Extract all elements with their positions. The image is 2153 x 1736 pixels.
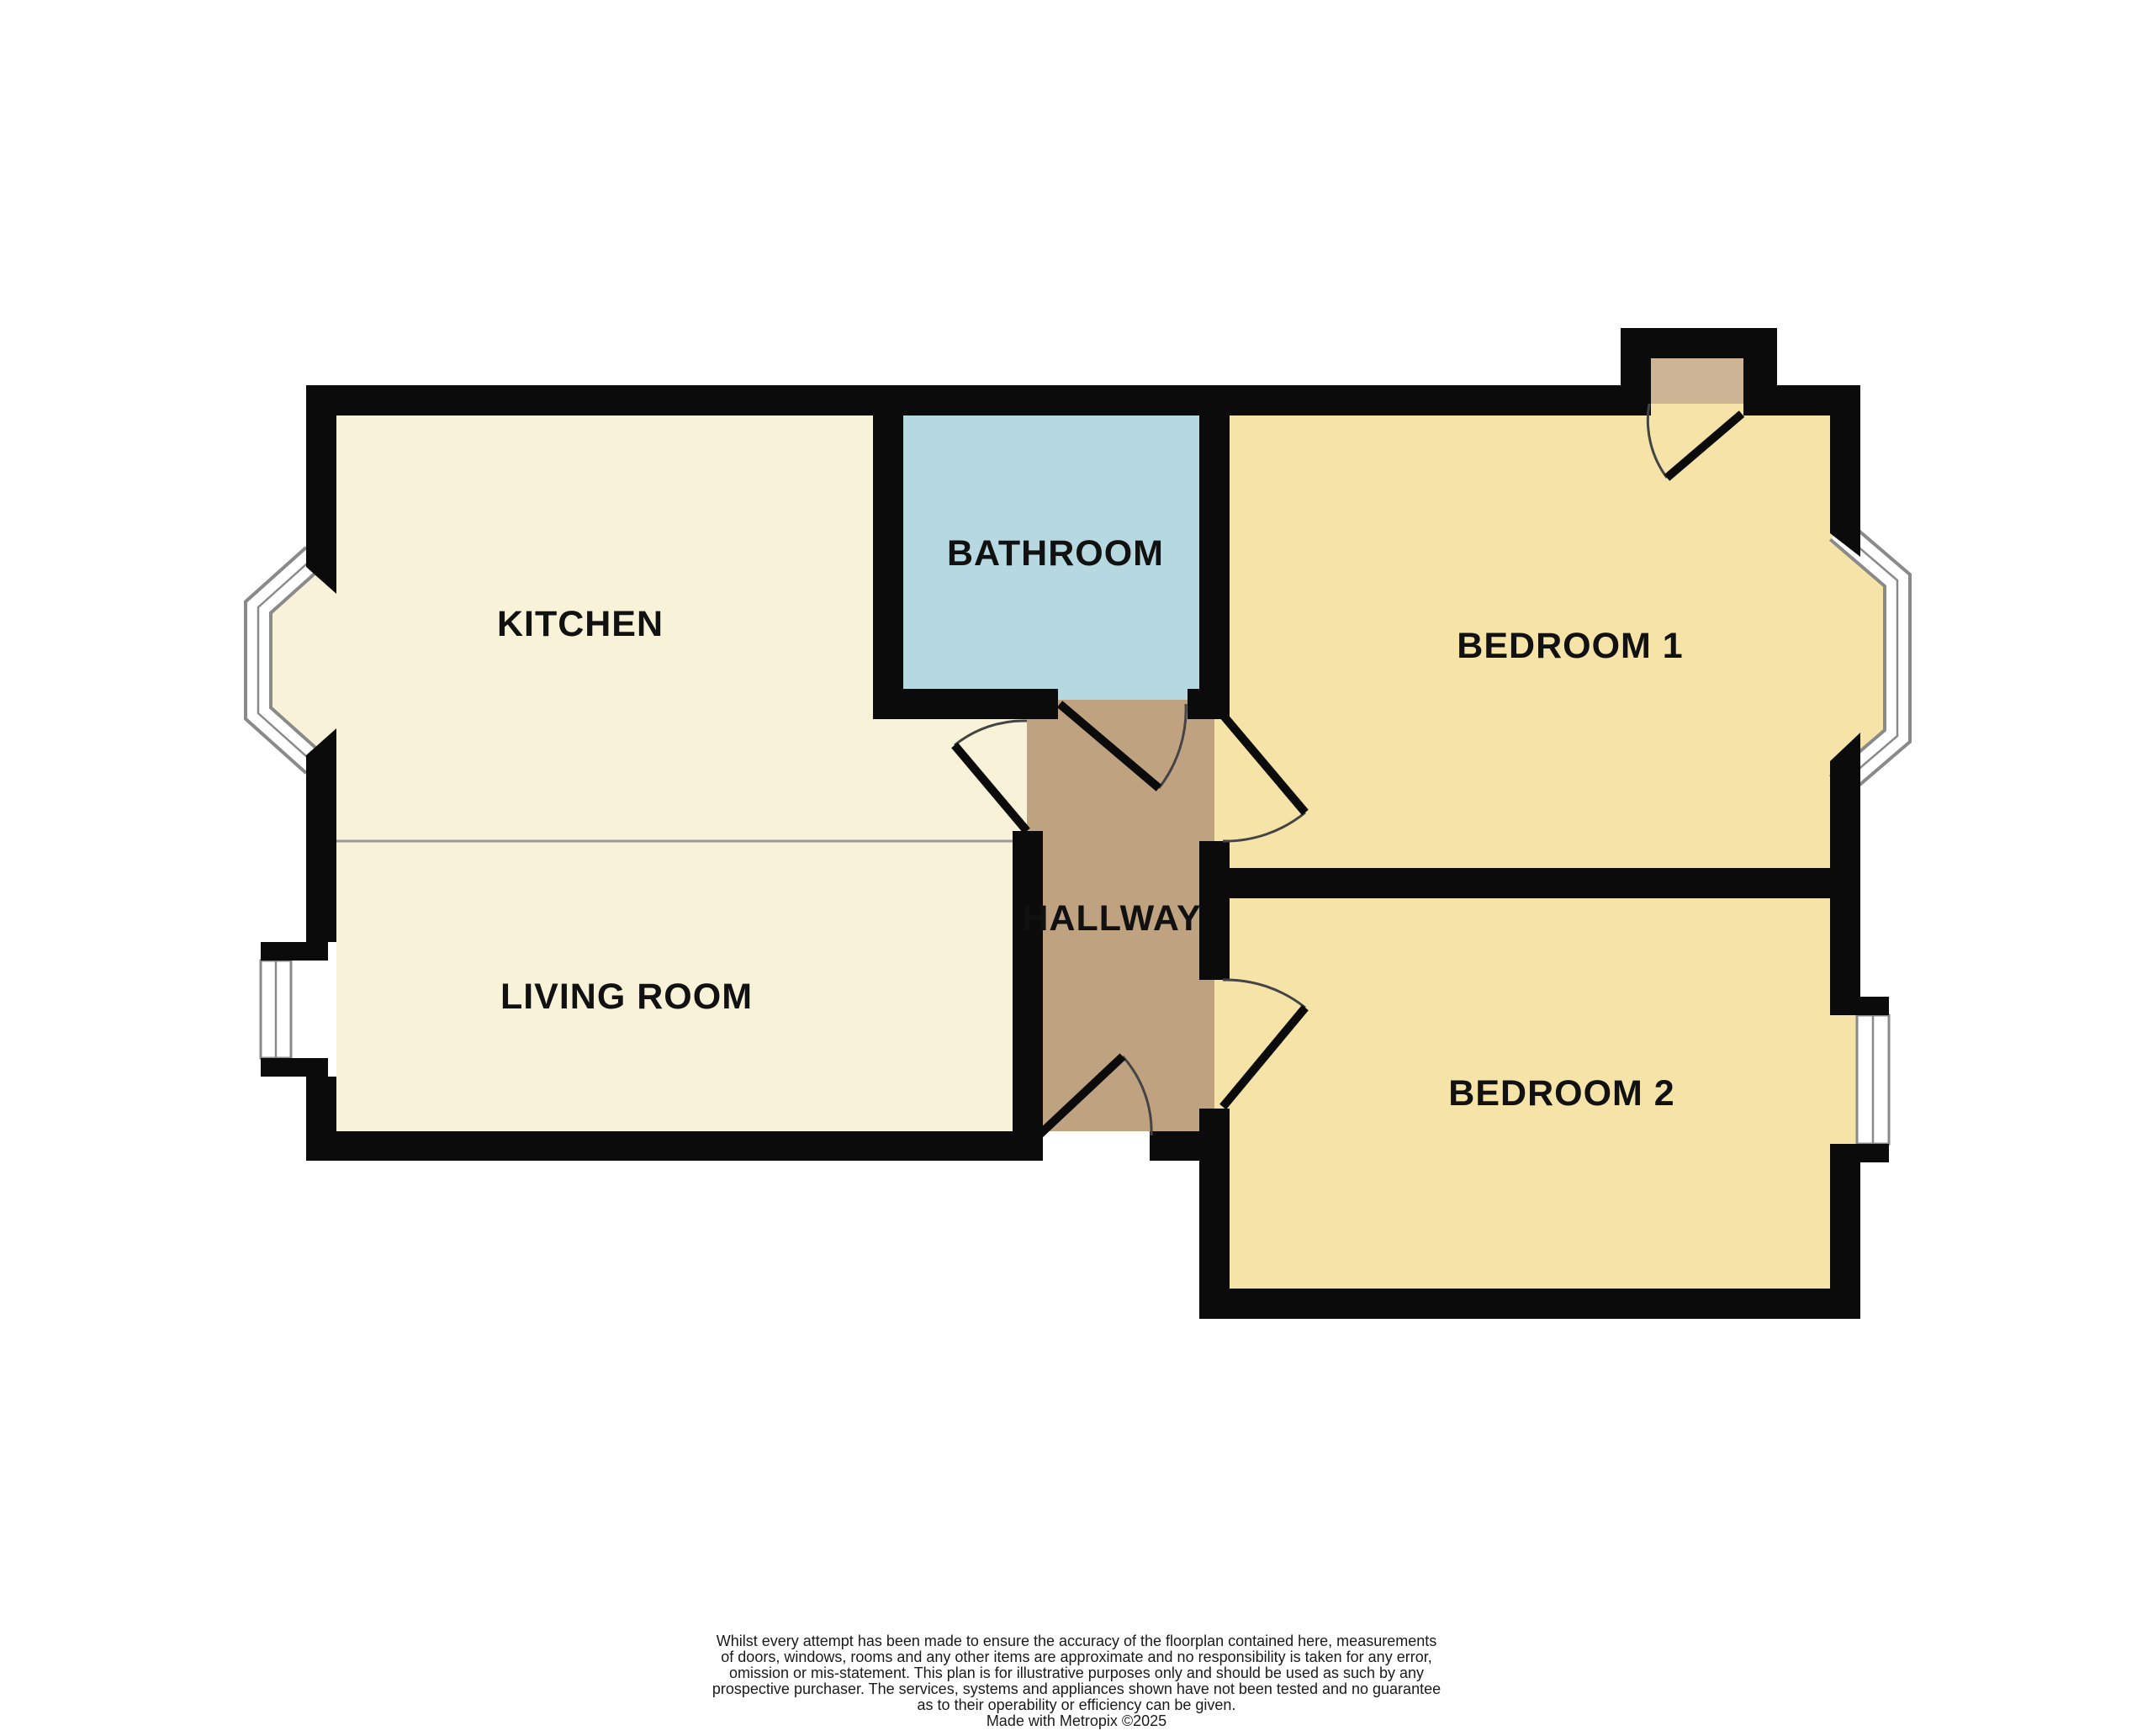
- floorplan-svg: KITCHEN BATHROOM BEDROOM 1 HALLWAY LIVIN…: [0, 0, 2153, 1736]
- label-hallway: HALLWAY: [1022, 898, 1201, 939]
- entrance-threshold-inner: [1651, 404, 1743, 415]
- label-bedroom1: BEDROOM 1: [1457, 626, 1683, 666]
- label-kitchen: KITCHEN: [497, 604, 664, 644]
- disclaimer-text: Whilst every attempt has been made to en…: [712, 1633, 1441, 1729]
- disclaimer-line: omission or mis-statement. This plan is …: [729, 1665, 1424, 1681]
- metropix-credit: Made with Metropix ©2025: [987, 1712, 1166, 1729]
- living-room-window-icon: [261, 961, 291, 1058]
- disclaimer-line: of doors, windows, rooms and any other i…: [721, 1649, 1431, 1665]
- label-bedroom2: BEDROOM 2: [1448, 1073, 1674, 1114]
- label-bathroom: BATHROOM: [947, 533, 1164, 574]
- disclaimer-line: prospective purchaser. The services, sys…: [712, 1680, 1441, 1697]
- label-living-room: LIVING ROOM: [500, 977, 753, 1017]
- bedroom2-window-icon: [1857, 1015, 1889, 1144]
- floorplan-page: KITCHEN BATHROOM BEDROOM 1 HALLWAY LIVIN…: [0, 0, 2153, 1736]
- entrance-threshold: [1651, 358, 1743, 404]
- disclaimer-line: as to their operability or efficiency ca…: [918, 1696, 1236, 1713]
- disclaimer-line: Whilst every attempt has been made to en…: [717, 1633, 1436, 1649]
